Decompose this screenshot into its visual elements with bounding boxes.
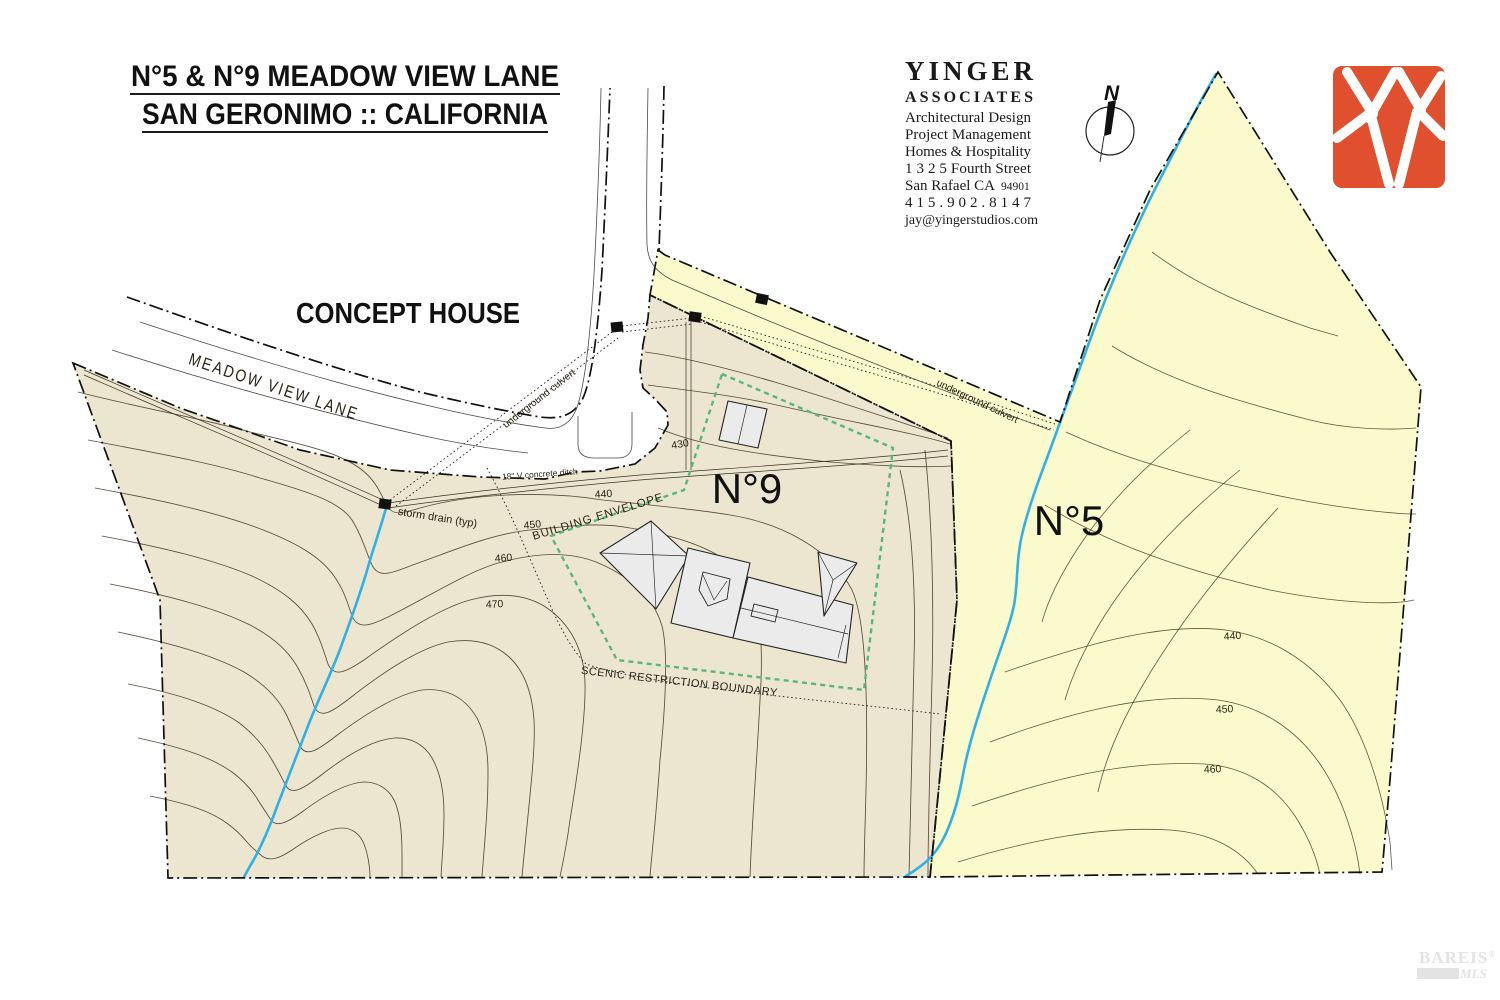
architect-name: YINGER — [905, 56, 1034, 86]
road-name-label: MEADOW VIEW LANE — [186, 350, 361, 424]
underground-culvert-label-road: underground culvert — [501, 367, 578, 431]
svg-text:MLS: MLS — [1459, 966, 1487, 981]
svg-text:450: 450 — [523, 518, 542, 532]
parcel-n9-label: N°9 — [712, 465, 783, 512]
architect-block: YINGER ASSOCIATES Architectural Design P… — [904, 56, 1038, 228]
architect-service1: Architectural Design — [905, 110, 1032, 126]
architect-name2: ASSOCIATES — [905, 89, 1033, 106]
yinger-logo — [1333, 66, 1445, 188]
title-underline-1 — [130, 93, 560, 95]
svg-text:460: 460 — [1204, 763, 1222, 776]
svg-text:440: 440 — [594, 488, 612, 501]
svg-text:450: 450 — [1216, 703, 1234, 716]
svg-text:BAREIS®: BAREIS® — [1419, 948, 1496, 967]
concept-house-label: CONCEPT HOUSE — [296, 298, 520, 330]
svg-text:460: 460 — [494, 552, 512, 565]
north-arrow: N — [1086, 82, 1134, 162]
architect-service2: Project Management — [905, 127, 1032, 143]
title-underline-2 — [142, 131, 548, 133]
svg-text:440: 440 — [1223, 630, 1241, 643]
svg-text:470: 470 — [486, 598, 504, 611]
sheet-title-line1: N°5 & N°9 MEADOW VIEW LANE — [131, 60, 559, 93]
garage-footprint — [719, 401, 767, 448]
architect-email: jay@yingerstudios.com — [904, 213, 1038, 228]
sheet-title-line2: SAN GERONIMO :: CALIFORNIA — [142, 98, 548, 131]
north-label: N — [1104, 82, 1120, 105]
site-plan-sheet: N°5 & N°9 MEADOW VIEW LANE SAN GERONIMO … — [0, 0, 1500, 1000]
site-plan-drawing: N°5 & N°9 MEADOW VIEW LANE SAN GERONIMO … — [0, 0, 1500, 1000]
architect-service3: Homes & Hospitality — [905, 144, 1032, 160]
parcel-n5-label: N°5 — [1034, 497, 1105, 544]
bareis-mls-watermark: BAREIS® MLS — [1417, 948, 1496, 981]
architect-address: 1 3 2 5 Fourth Street — [905, 161, 1032, 177]
architect-city-zip: San Rafael CA94901 — [905, 178, 1030, 194]
architect-phone: 4 1 5 . 9 0 2 . 8 1 4 7 — [905, 195, 1032, 211]
